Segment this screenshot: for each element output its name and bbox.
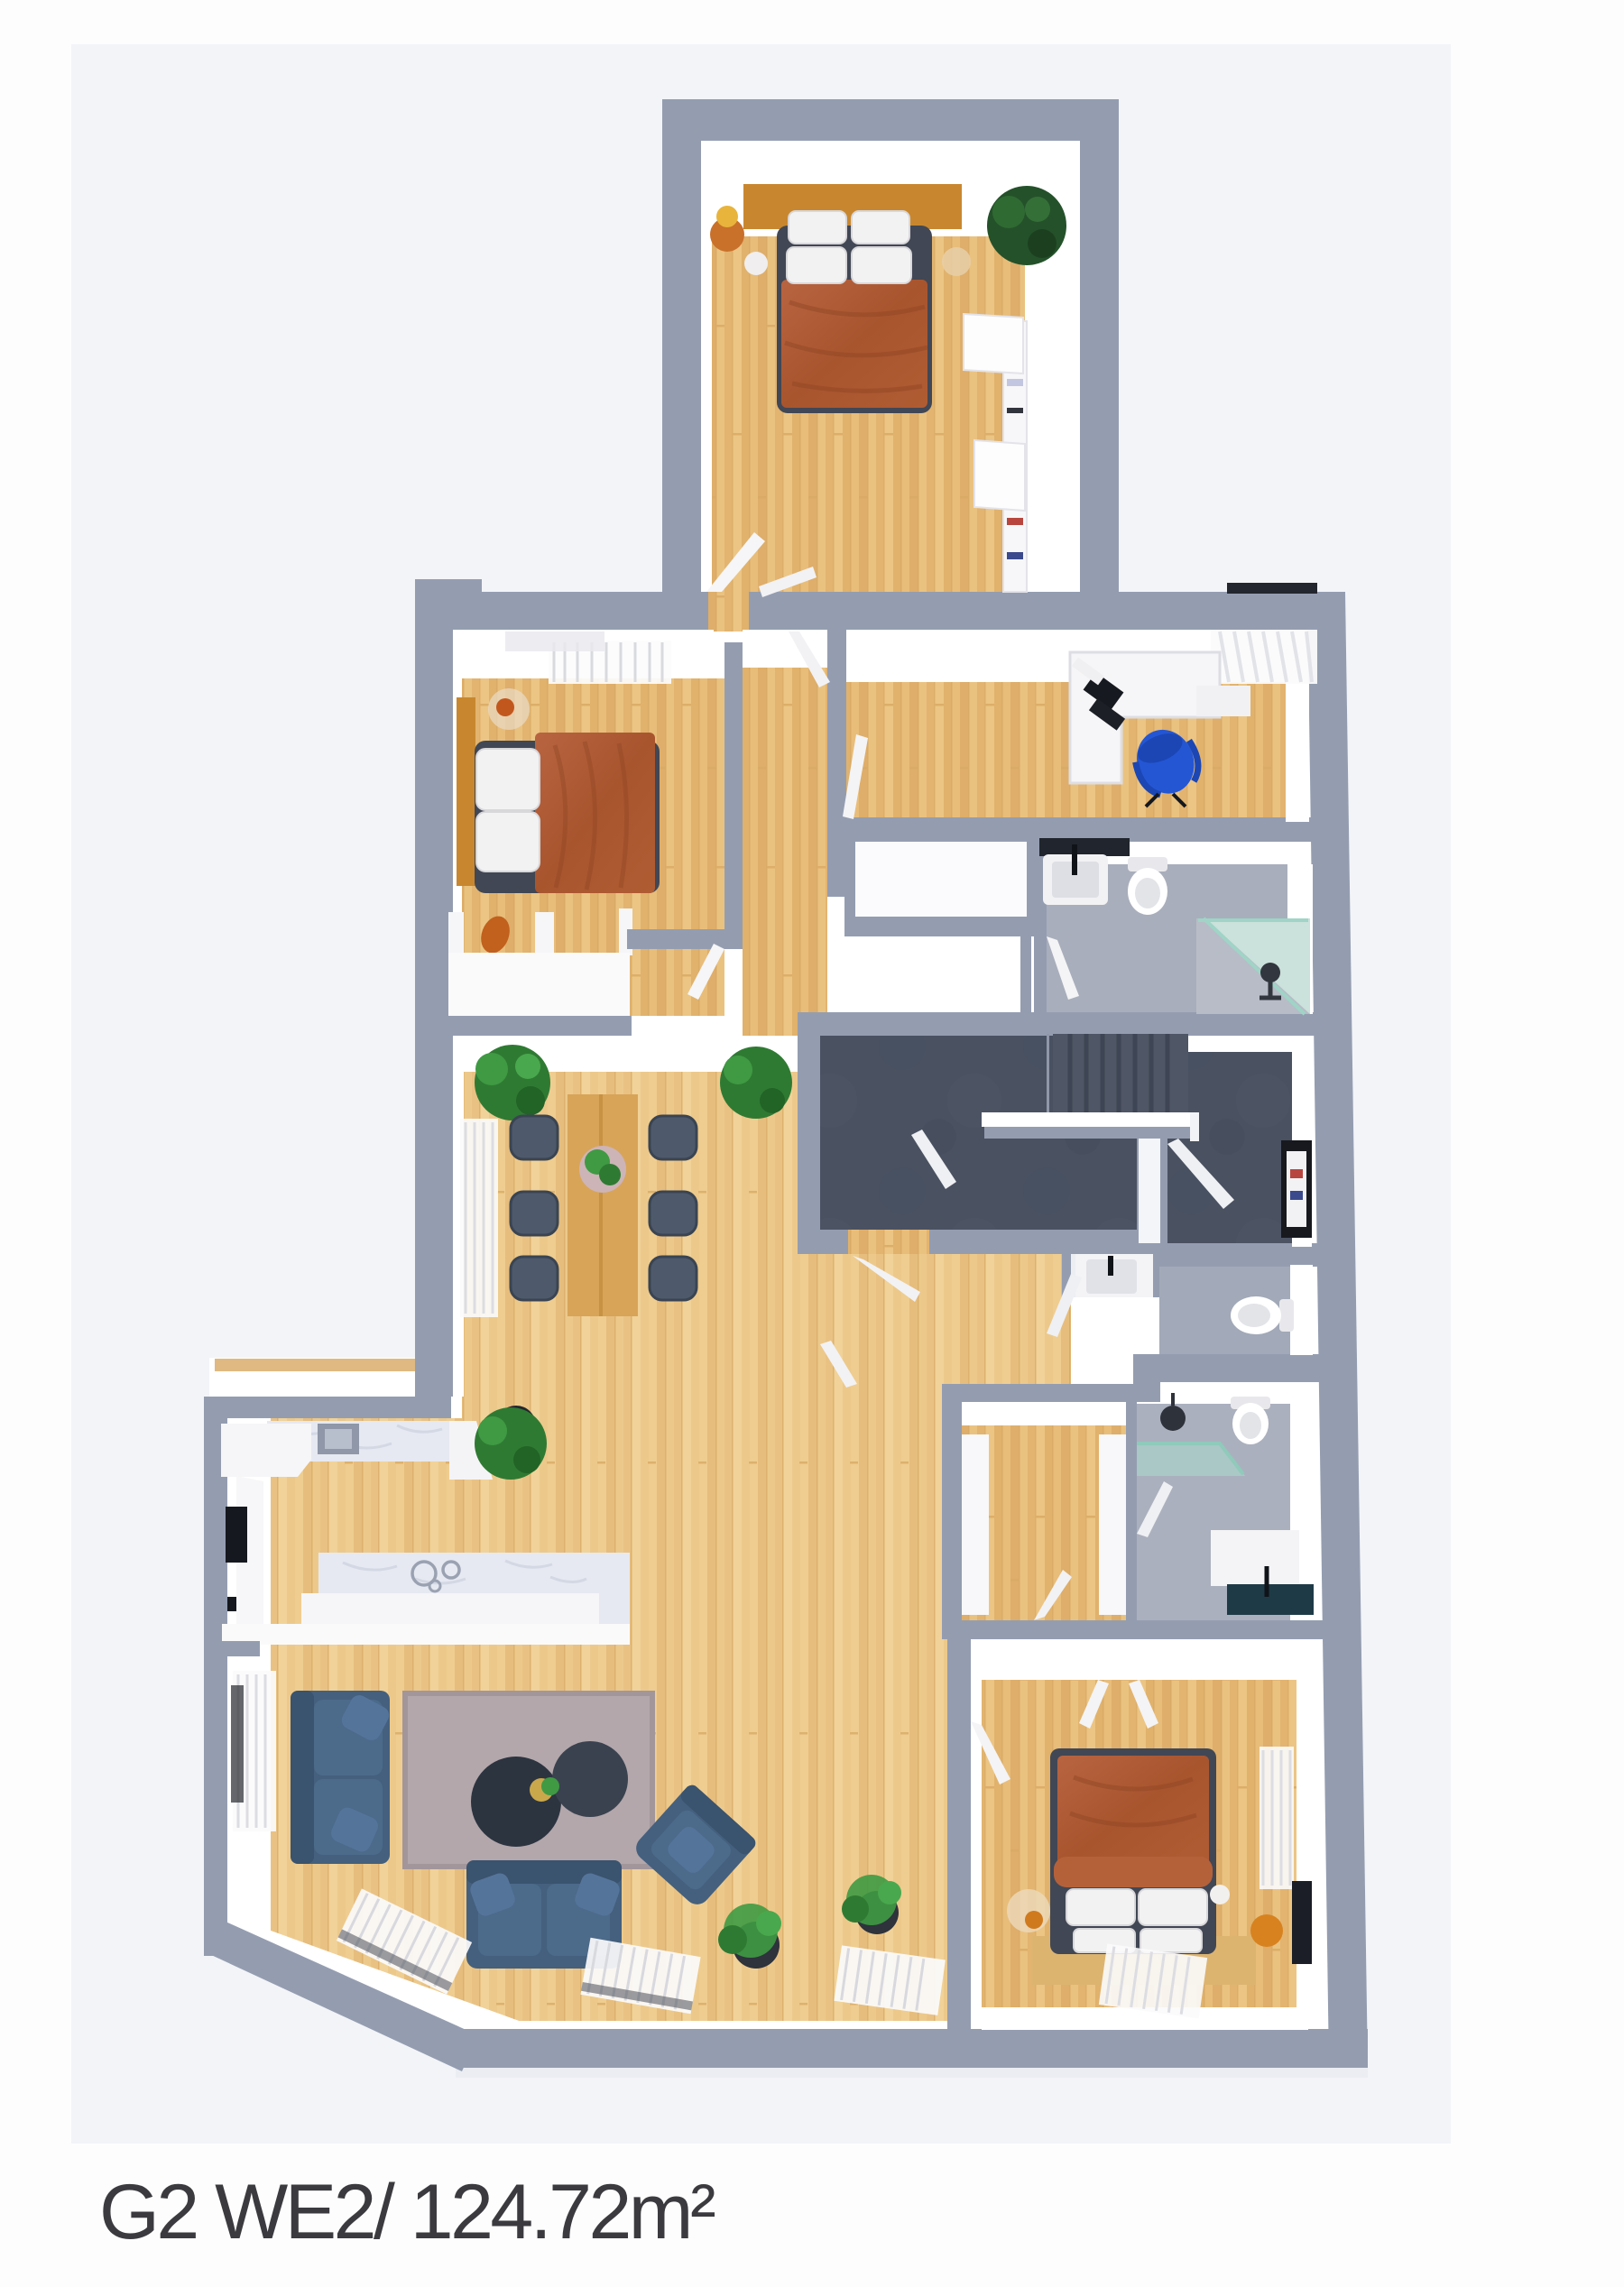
svg-text:G2 WE2/ 124.72m²: G2 WE2/ 124.72m²	[99, 2169, 715, 2255]
